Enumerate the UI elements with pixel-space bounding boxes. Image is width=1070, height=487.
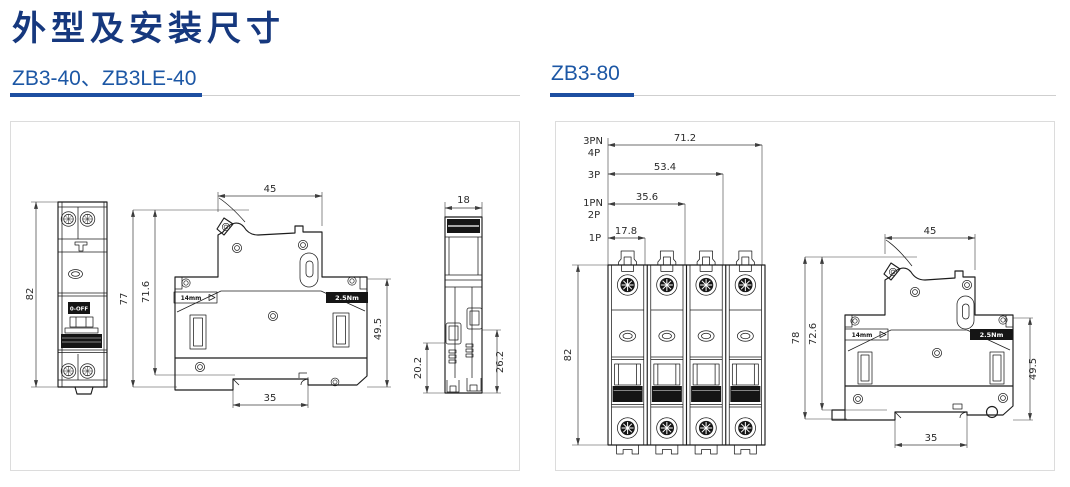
test-button	[75, 242, 87, 251]
breaker-lever	[884, 263, 900, 280]
toggle-handle	[61, 334, 102, 348]
pole-label-1p: 1P	[589, 233, 601, 244]
dim-width-1p: 17.8	[615, 226, 637, 237]
gauge-label: 14mm	[181, 295, 202, 302]
zb3-40-drawing: 82 0-OFF 45 77 71.6 49.5 35	[11, 122, 519, 470]
dim-40-terminal-right: 26.2	[495, 351, 506, 373]
side-view-80: 45 78 72.6 49.5 35 14mm 2.5Nm	[791, 226, 1039, 448]
pole-label-1pn: 1PN	[583, 198, 603, 209]
dim-4p-height: 82	[563, 349, 574, 362]
gauge-arrow-icon	[880, 332, 886, 338]
torque-label: 2.5Nm	[335, 294, 359, 302]
dim-40-depth: 49.5	[373, 318, 384, 340]
dim-width-2p: 35.6	[636, 192, 658, 203]
dim-80-total-height: 78	[791, 332, 802, 345]
pole-label-2p: 2P	[588, 210, 600, 221]
dim-40-body-height: 71.6	[141, 281, 152, 303]
breaker-lever	[217, 218, 233, 235]
pole-width-table: 3PN 4P 3P 1PN 2P 1P 71.2 53.4 35.6 17.8	[583, 133, 762, 265]
dim-40-top-width: 45	[264, 184, 277, 195]
top-view-40: 18 20.2 26.2	[413, 195, 506, 393]
dim-80-body-height: 72.6	[808, 323, 819, 345]
front-view-1p: 82 0-OFF	[25, 202, 107, 394]
panel-zb3-80: 3PN 4P 3P 1PN 2P 1P 71.2 53.4 35.6 17.8 …	[555, 121, 1055, 471]
panel-zb3-40: 82 0-OFF 45 77 71.6 49.5 35	[10, 121, 520, 471]
dim-1p-height: 82	[25, 288, 36, 301]
dim-40-total-height: 77	[119, 293, 130, 306]
gauge-label: 14mm	[852, 332, 873, 339]
zb3-80-drawing: 3PN 4P 3P 1PN 2P 1P 71.2 53.4 35.6 17.8 …	[556, 122, 1054, 470]
dim-40-width: 18	[457, 195, 470, 206]
pole-label-4p: 4P	[588, 148, 600, 159]
dim-width-3p: 53.4	[654, 162, 676, 173]
torque-label: 2.5Nm	[980, 331, 1004, 339]
pole-label-3p: 3P	[588, 170, 600, 181]
front-view-4p: 82	[563, 251, 765, 454]
heading-accent-right	[550, 93, 634, 97]
pole-label-3pn: 3PN	[583, 136, 603, 147]
section-heading-zb3-40: ZB3-40、ZB3LE-40	[12, 62, 196, 92]
dim-40-rail-width: 35	[264, 393, 277, 404]
dim-80-rail-width: 35	[925, 433, 938, 444]
switch-position-label: 0-OFF	[70, 307, 89, 313]
dim-80-top-width: 45	[924, 226, 937, 237]
page-title: 外型及安装尺寸	[12, 1, 285, 50]
dim-80-depth: 49.5	[1028, 358, 1039, 380]
heading-accent-left	[10, 93, 202, 97]
dim-40-terminal-left: 20.2	[413, 357, 424, 379]
section-heading-zb3-80: ZB3-80	[551, 62, 620, 86]
side-view-40: 45 77 71.6 49.5 35 14mm 2.5Nm	[119, 184, 391, 408]
dim-width-4p: 71.2	[674, 133, 696, 144]
